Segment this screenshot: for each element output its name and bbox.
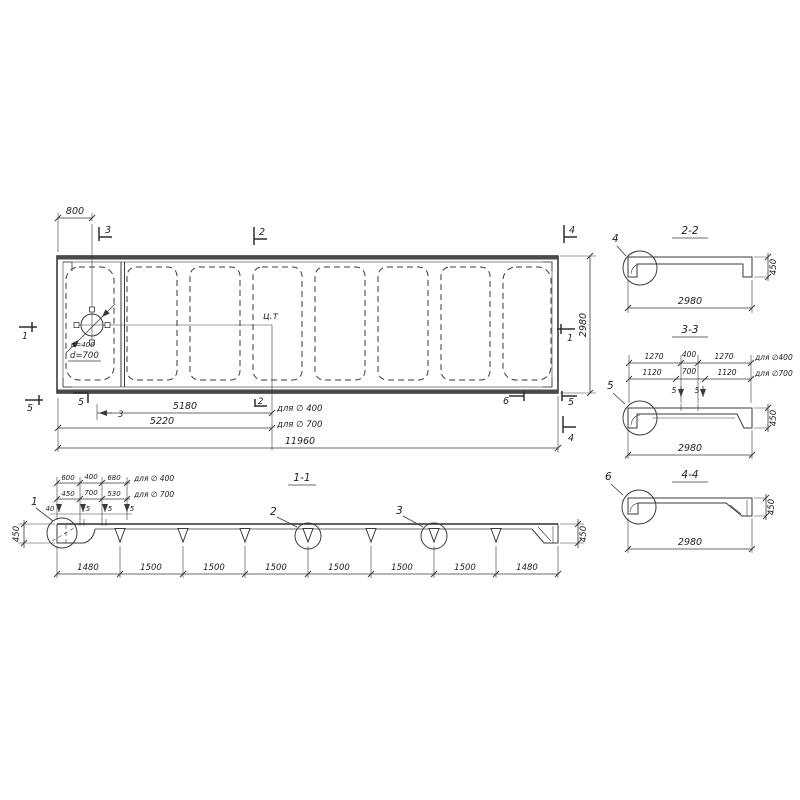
dim-1500: 1500 [265, 563, 287, 573]
dim-extension [57, 546, 558, 578]
dim-2980: 2980 [678, 443, 702, 454]
hole-anchor-square [90, 307, 95, 312]
dim-5180: 5180 [173, 401, 197, 412]
dim-extension [57, 477, 127, 520]
panel-recess-outline [378, 267, 428, 380]
dim-1500: 1500 [328, 563, 350, 573]
plan-view: d=400 d=700 ц.т 800 3 2 4 1 1 [19, 206, 596, 452]
section-mark-label: 4 [568, 433, 574, 444]
dim-400: 400 [84, 473, 98, 481]
gap-dim-5: 5 [695, 386, 700, 395]
panel-recess-outline [315, 267, 365, 380]
technical-drawing: d=400 d=700 ц.т 800 3 2 4 1 1 [0, 0, 800, 800]
section-4-4: 4-4 6 2980 450 [605, 469, 777, 553]
section-mark-label: 5 [78, 397, 84, 408]
detail-label-1: 1 [31, 496, 38, 508]
dim-label-for-700: для ∅700 [754, 369, 793, 378]
dim-450: 450 [61, 490, 75, 498]
dim-600: 600 [61, 474, 75, 482]
section-mark-4-top: 4 [564, 225, 577, 243]
dim-1500: 1500 [454, 563, 476, 573]
detail-leader [403, 516, 423, 527]
section-2-2: 2-2 4 2980 450 [612, 225, 779, 313]
dim-1500: 1500 [391, 563, 413, 573]
slab-bottom-edge [57, 390, 558, 394]
dim-label-for-700: для ∅ 700 [276, 420, 322, 430]
panel-recess-outline [190, 267, 240, 380]
section-mark-3-top: 3 [99, 225, 112, 241]
section-mark-4-bottom: 4 [563, 416, 576, 444]
dim-extension [754, 498, 766, 516]
section-mark-label: 1 [22, 331, 28, 342]
dim-1480: 1480 [77, 563, 99, 573]
section-mark-label: 2 [259, 227, 265, 238]
section-mark-2-dim: 2 [255, 397, 267, 407]
dim-450: 450 [767, 499, 777, 515]
detail-circle-6 [622, 490, 656, 524]
hole-anchor-square [105, 323, 110, 328]
rib-notch [303, 529, 313, 543]
detail-leader [277, 517, 297, 527]
section-mark-1-left: 1 [19, 322, 37, 342]
section-title: 3-3 [681, 324, 698, 336]
detail-leader [617, 246, 626, 256]
section-mark-label: 5 [568, 397, 574, 408]
rib-notch [429, 529, 439, 543]
section-mark-label: 3 [105, 225, 111, 236]
section-mark-1-right: 1 [557, 324, 575, 344]
panel-recess-outline [441, 267, 490, 380]
slab-top-edge [57, 256, 558, 260]
dim-530: 530 [107, 490, 121, 498]
section-profile [628, 498, 752, 516]
dim-2980: 2980 [678, 296, 702, 307]
dim-5: 5 [130, 505, 135, 513]
dim-label-for-400: для ∅ 400 [276, 404, 322, 414]
detail-leader [613, 393, 625, 404]
section-mark-5-bottom-right: 5 [562, 391, 577, 408]
section-title: 2-2 [681, 225, 698, 237]
dim-5: 5 [108, 505, 113, 513]
center-of-gravity-label: ц.т [263, 311, 278, 322]
rib-notch [115, 529, 125, 543]
profile-right-end-detail [538, 526, 553, 543]
slab-inner-outline [63, 262, 552, 387]
hole-edge-ticks [80, 519, 106, 526]
dim-5220: 5220 [150, 416, 174, 427]
section-3-3: 3-3 1270 400 1270 для ∅400 1120 700 1120… [607, 324, 793, 459]
panel-recess-outline [127, 267, 177, 380]
corner-anchor-plates [63, 262, 552, 387]
dim-700: 700 [84, 489, 98, 497]
dim-700: 700 [682, 367, 697, 376]
section-profile [628, 257, 752, 277]
dim-1500: 1500 [203, 563, 225, 573]
dim-extension [754, 257, 768, 277]
dim-800: 800 [66, 206, 84, 217]
dim-extension [18, 524, 55, 543]
blueprint-canvas: d=400 d=700 ц.т 800 3 2 4 1 1 [0, 0, 800, 800]
dim-400: 400 [682, 350, 697, 359]
profile-left-hook-detail [52, 525, 76, 543]
slab-outline [57, 256, 558, 393]
section-mark-label: 4 [569, 225, 575, 236]
section-1-1: 1-1 600 400 680 для ∅ 400 450 700 530 дл… [12, 472, 589, 578]
dim-40: 40 [46, 505, 55, 513]
section-title: 4-4 [681, 469, 698, 481]
detail-label-4: 4 [612, 233, 619, 245]
dim-1480: 1480 [516, 563, 538, 573]
section-mark-3-dim: 3 [118, 410, 123, 420]
rib-notch [491, 529, 501, 543]
detail-label-2: 2 [270, 506, 277, 518]
dim-11960: 11960 [285, 436, 315, 447]
dim-height-left: 450 [12, 526, 22, 542]
dim-label-for-400: для ∅ 400 [133, 474, 174, 483]
dim-2980-plan: 2980 [578, 313, 589, 337]
dim-1270: 1270 [644, 352, 663, 361]
dim-extension [58, 213, 92, 252]
dim-680: 680 [107, 474, 121, 482]
section-mark-label: 1 [567, 333, 573, 344]
panel-recess-outline [253, 267, 302, 380]
dim-height-right: 450 [579, 526, 589, 542]
rib-notch [366, 529, 376, 543]
hole-label-d400: d=400 [71, 341, 95, 349]
dim-1270: 1270 [714, 352, 733, 361]
section-mark-label: 2 [258, 397, 263, 407]
dim-1120: 1120 [717, 368, 736, 377]
rib-notch [178, 529, 188, 543]
hole-label-d700: d=700 [70, 351, 99, 361]
detail-label-5: 5 [607, 380, 614, 392]
detail-label-3: 3 [396, 505, 403, 517]
detail-leader [611, 484, 623, 495]
dim-1500: 1500 [140, 563, 162, 573]
dim-2980: 2980 [678, 537, 702, 548]
section-title: 1-1 [293, 472, 310, 484]
hole-anchor-square [74, 323, 79, 328]
section-mark-label: 6 [503, 396, 509, 407]
dim-450: 450 [769, 259, 779, 275]
dim-450: 450 [769, 410, 779, 426]
gap-dim-5: 5 [672, 386, 677, 395]
dim-label-for-700: для ∅ 700 [133, 490, 174, 499]
panel-recess-outline [503, 267, 551, 380]
dim-label-for-400: для ∅400 [754, 353, 793, 362]
detail-label-6: 6 [605, 471, 612, 483]
hole-callout-arrow [102, 304, 115, 317]
profile-right-end [532, 524, 558, 543]
transverse-rib-lines [121, 262, 125, 387]
section-mark-5-bottom: 5 [73, 393, 88, 408]
rib-notch [240, 529, 250, 543]
dim-5: 5 [86, 505, 91, 513]
section-mark-label: 5 [27, 403, 33, 414]
section-mark-2-top: 2 [254, 227, 267, 245]
section-mark-5-bottom-left: 5 [25, 395, 43, 414]
dim-1120: 1120 [642, 368, 661, 377]
dim-extension [754, 408, 768, 428]
